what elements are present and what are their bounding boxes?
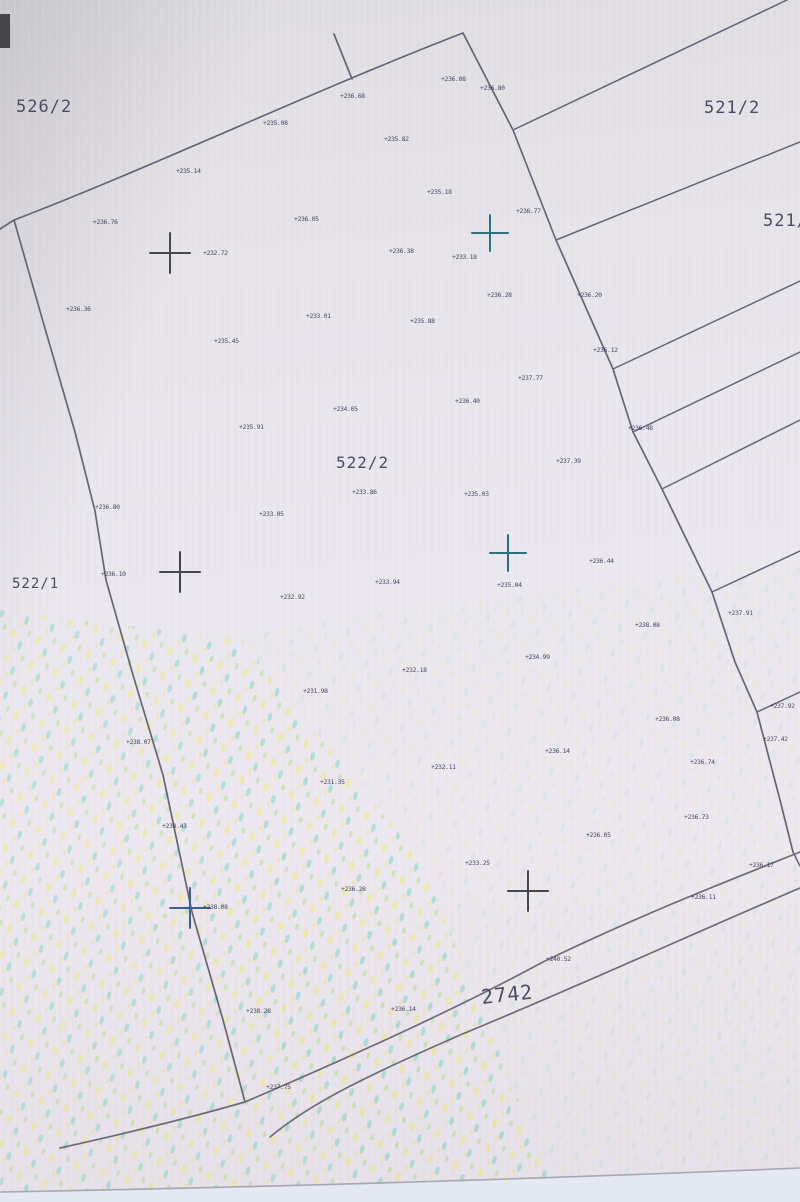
scanned-cadastral-plan: +236.68+235.08+236.08+236.80+235.14+236.… [0,0,800,1202]
survey-cross-1 [150,233,190,273]
elevation-point-label: +235.03 [464,490,489,498]
elevation-point-label: +236.08 [655,715,680,723]
elevation-point-label: +234.99 [525,653,550,661]
elevation-point-label: +236.74 [690,758,715,766]
corner-scan-mark [0,14,10,48]
elevation-point-label: +236.11 [691,893,716,901]
elevation-point-label: +236.76 [93,218,118,226]
elevation-point-label: +236.12 [593,346,618,354]
elevation-point-label: +236.05 [294,215,319,223]
elevation-point-label: +234.05 [333,405,358,413]
elevation-point-label: +238.08 [635,621,660,629]
elevation-point-label: +236.80 [480,84,505,92]
elevation-point-label: +233.05 [259,510,284,518]
elevation-point-label: +237.92 [770,702,795,710]
elevation-point-label: +236.44 [589,557,614,565]
elevation-point-label: +236.73 [684,813,709,821]
elevation-point-label: +233.01 [306,312,331,320]
elevation-point-label: +236.40 [455,397,480,405]
elevation-point-label: +235.04 [497,581,522,589]
survey-cross-2 [472,215,508,251]
elevation-point-label: +235.82 [384,135,409,143]
elevation-point-label: +240.52 [546,955,571,963]
elevation-point-label: +236.05 [586,831,611,839]
elevation-point-label: +237.39 [556,457,581,465]
elevation-point-label: +233.86 [352,488,377,496]
cadastral-map: +236.68+235.08+236.08+236.80+235.14+236.… [0,0,800,1202]
elevation-point-label: +236.36 [66,305,91,313]
elevation-point-label: +237.77 [518,374,543,382]
elevation-point-label: +232.11 [431,763,456,771]
elevation-point-label: +235.88 [410,317,435,325]
parcel-526-2: 526/2 [16,97,72,117]
strip-line-5 [662,420,800,489]
elevation-point-label: +236.17 [749,861,774,869]
elevation-point-label: +236.14 [545,747,570,755]
elevation-point-label: +236.48 [628,424,653,432]
elevation-point-label: +236.80 [95,503,120,511]
top-boundary [0,33,463,229]
parcel-522-2: 522/2 [336,453,389,472]
elevation-point-label: +236.77 [516,207,541,215]
parcel-522-1: 522/1 [12,576,59,592]
elevation-point-label: +233.94 [375,578,400,586]
elevation-point-label: +232.92 [280,593,305,601]
elevation-point-label: +236.68 [340,92,365,100]
top-tick [334,34,352,79]
elevation-point-label: +236.28 [487,291,512,299]
elevation-point-label: +235.18 [427,188,452,196]
elevation-point-label: +235.08 [263,119,288,127]
elevation-point-label: +232.72 [203,249,228,257]
elevation-point-label: +233.25 [465,859,490,867]
elevation-point-label: +232.18 [402,666,427,674]
elevation-point-label: +238.08 [203,903,228,911]
strip-line-4 [633,352,800,432]
elevation-point-label: +231.35 [320,778,345,786]
elevation-point-label: +235.91 [239,423,264,431]
elevation-point-label: +231.98 [303,687,328,695]
survey-cross-3 [160,552,200,592]
elevation-point-label: +238.07 [126,738,151,746]
elevation-point-label: +233.18 [452,253,477,261]
elevation-point-label: +235.45 [214,337,239,345]
elevation-point-label: +236.28 [341,885,366,893]
elevation-point-label: +236.08 [441,75,466,83]
elevation-point-label: +237.42 [763,735,788,743]
elevation-point-label: +236.10 [101,570,126,578]
elevation-point-label: +237.91 [728,609,753,617]
parcel-521-1: 521/1 [763,211,800,231]
strip-line-3 [613,281,800,369]
survey-cross-4 [490,535,526,571]
elevation-point-label: +237.75 [266,1083,291,1091]
elevation-point-label: +236.20 [577,291,602,299]
elevation-point-label: +235.14 [176,167,201,175]
elevation-point-label: +238.28 [246,1007,271,1015]
elevation-point-label: +238.43 [162,822,187,830]
elevation-point-label: +236.38 [389,247,414,255]
elevation-point-label: +236.14 [391,1005,416,1013]
parcel-521-2: 521/2 [704,98,760,118]
